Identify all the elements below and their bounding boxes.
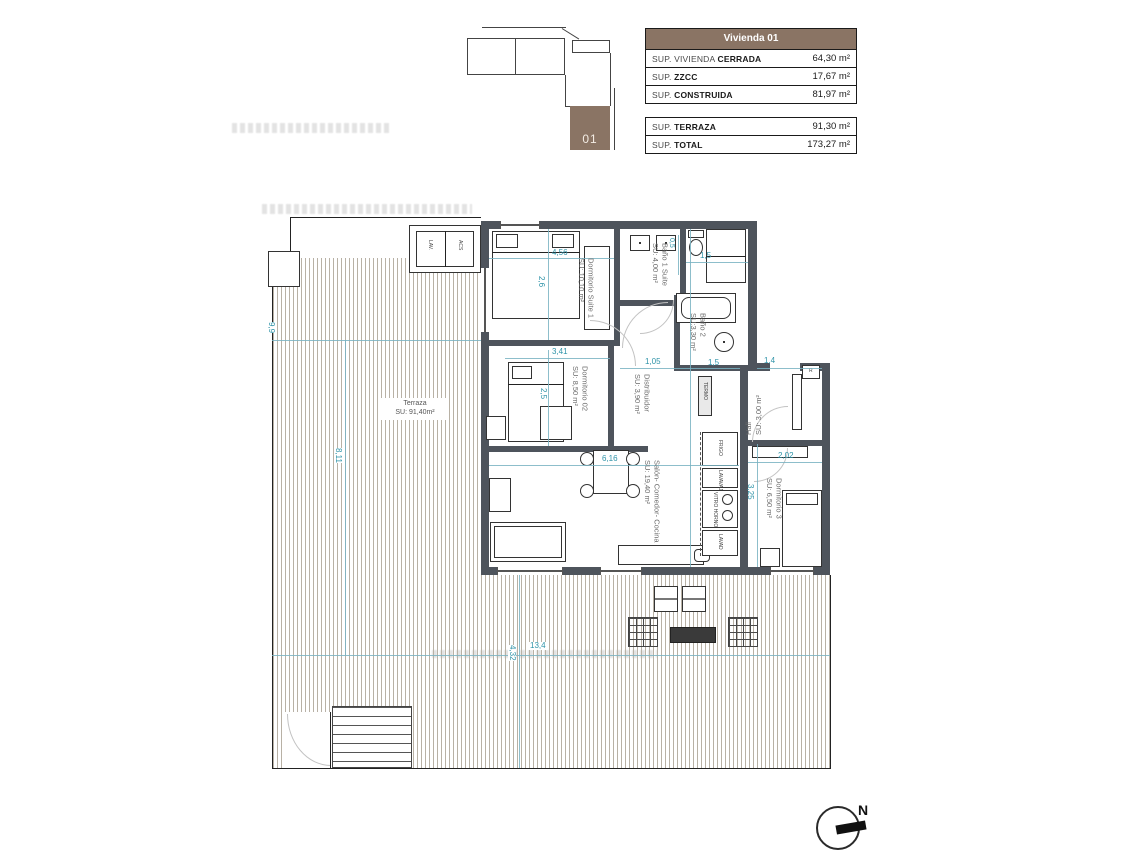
room-label-bano-1-suite: Baño 1 Suite SU: 4,00 m²: [650, 243, 670, 333]
dimension-line: [690, 229, 691, 567]
locator-highlighted-unit: 01: [570, 106, 610, 150]
room-area: SU: 4,00 m²: [650, 243, 660, 333]
terrace-deck-left: [273, 258, 481, 768]
wardrobe-shelf-line: [706, 256, 746, 257]
lav-closet-label: LAV.: [427, 240, 432, 250]
watermark-text: [262, 204, 472, 214]
dresser: [540, 406, 572, 440]
dimension-label: 9,9: [267, 322, 275, 333]
table-row: SUP. TOTAL 173,27 m²: [646, 135, 856, 153]
wall-ext-right: [822, 363, 830, 575]
bed-fold-line: [508, 384, 564, 385]
terrace-planter: [682, 586, 706, 612]
dimension-line: [757, 444, 758, 567]
dimension-label: 2,6: [537, 276, 545, 287]
window: [600, 567, 642, 575]
room-label-distribuidor: Distribuidor SU: 3,90 m²: [632, 374, 652, 458]
room-name: Terraza: [381, 400, 449, 409]
dishwasher-label: LAVAVAJ: [717, 470, 722, 490]
dimension-line: [686, 262, 748, 263]
dimension-line: [272, 655, 830, 656]
room-area: SU: 91,40m²: [381, 409, 449, 418]
window: [497, 567, 563, 575]
dimension-line: [757, 368, 822, 369]
acs-closet-label: ACS: [457, 240, 462, 250]
dimension-label: 13,4: [528, 642, 548, 650]
watermark-text: [232, 123, 390, 133]
room-name: Dormitorio 02: [580, 366, 590, 446]
terrace-table-grid: [628, 617, 658, 647]
burner: [722, 494, 733, 505]
room-name: Hall: [744, 383, 754, 435]
row-value: 91,30 m²: [813, 121, 851, 132]
room-name: Salón- Comedor- Cocina: [652, 460, 662, 572]
room-area: SU: 8,50 m²: [570, 366, 580, 446]
washbasin-drain: [723, 341, 725, 343]
wall-right-upper: [748, 221, 757, 371]
dimension-line: [272, 340, 481, 341]
dimension-line: [345, 340, 346, 655]
dimension-line: [678, 235, 679, 275]
fridge-label: FRIGO: [717, 440, 722, 456]
table-row: SUP. ZZCC 17,67 m²: [646, 67, 856, 85]
locator-connector-v2: [565, 75, 566, 106]
dimension-label: 3,41: [552, 348, 568, 356]
terrace-edge-right: [830, 575, 831, 768]
dimension-line: [548, 350, 549, 446]
dining-chair: [580, 484, 594, 498]
pillow: [512, 366, 532, 379]
compass-north-label: N: [858, 802, 868, 818]
dimension-label: 8,11: [334, 448, 342, 463]
pillow: [786, 493, 818, 505]
room-name: Dormitorio 3: [774, 478, 784, 558]
room-area: SU:3,30 m²: [688, 313, 698, 385]
dimension-label: 1,4: [764, 357, 775, 365]
locator-block-left: [467, 38, 565, 75]
surface-table-main: Vivienda 01 SUP. VIVIENDA CERRADA 64,30 …: [645, 28, 857, 104]
kitchen-counter-edge: [700, 432, 701, 556]
washer-label: LAVAD: [717, 534, 722, 550]
dimension-label: 1,05: [645, 358, 661, 366]
room-area: SU: 3,00 m²: [754, 383, 764, 435]
room-area: SU: 19,40 m²: [642, 460, 652, 572]
window: [770, 567, 814, 575]
locator-block-right: [572, 40, 610, 53]
room-area: SU: 10,10 m²: [576, 258, 586, 378]
terrace-edge-top: [290, 217, 481, 218]
hall-cabinet: [792, 374, 802, 430]
room-name: Distribuidor: [642, 374, 652, 458]
table-row: SUP. VIVIENDA CERRADA 64,30 m²: [646, 49, 856, 67]
floorplan-sheet: 01 Vivienda 01 SUP. VIVIENDA CERRADA 64,…: [0, 0, 1140, 860]
armchair: [489, 478, 511, 512]
pillow: [496, 234, 518, 248]
room-name: Baño 2: [698, 313, 708, 385]
dimension-label: 1,5: [700, 252, 711, 260]
row-label: SUP. CONSTRUIDA: [652, 90, 733, 100]
sofa-seat: [494, 526, 562, 558]
cooktop-label: VITRO HORNO: [705, 492, 717, 527]
terrace-pillar: [268, 251, 300, 287]
room-name: Baño 1 Suite: [660, 243, 670, 333]
room-label-dormitorio-3: Dormitorio 3 SU: 6,50 m²: [764, 478, 784, 558]
burner: [722, 510, 733, 521]
nightstand: [486, 416, 506, 440]
surface-table-header: Vivienda 01: [646, 29, 856, 49]
table-row: SUP. TERRAZA 91,30 m²: [646, 118, 856, 135]
dining-chair: [580, 452, 594, 466]
dimension-label: 1,5: [708, 359, 719, 367]
window: [481, 268, 489, 332]
room-label-salon-comedor-cocina: Salón- Comedor- Cocina SU: 19,40 m²: [642, 460, 662, 572]
dimension-label: 3,25: [746, 484, 754, 500]
terrace-stairs: [332, 706, 412, 768]
room-label-bano-2: Baño 2 SU:3,30 m²: [688, 313, 708, 385]
dimension-label: 2,02: [778, 452, 794, 460]
terrace-edge-bottom: [272, 768, 831, 769]
row-value: 173,27 m²: [807, 139, 850, 150]
row-label: SUP. ZZCC: [652, 72, 698, 82]
sink-drain: [639, 242, 641, 244]
room-area: SU: 6,50 m²: [764, 478, 774, 558]
dimension-line: [519, 575, 520, 768]
surface-table-totals: SUP. TERRAZA 91,30 m² SUP. TOTAL 173,27 …: [645, 117, 857, 154]
terrace-planter: [654, 586, 678, 612]
register-label: R: [809, 369, 813, 374]
pillow: [552, 234, 574, 248]
terrace-door-leaf: [330, 712, 331, 768]
room-label-terraza: Terraza SU: 91,40m²: [381, 398, 449, 420]
utility-closet-divider: [445, 231, 446, 267]
room-area: SU: 3,90 m²: [632, 374, 642, 458]
dimension-label: 4,32: [508, 645, 516, 661]
row-value: 64,30 m²: [813, 53, 851, 64]
dimension-label: 6,16: [602, 455, 618, 463]
locator-connector-v3: [614, 88, 615, 150]
row-label: SUP. VIVIENDA CERRADA: [652, 54, 761, 64]
terrace-table-grid: [728, 617, 758, 647]
dimension-line: [748, 462, 822, 463]
locator-divider: [515, 38, 516, 75]
table-row: SUP. CONSTRUIDA 81,97 m²: [646, 85, 856, 103]
row-label: SUP. TOTAL: [652, 140, 703, 150]
dining-chair: [626, 484, 640, 498]
room-label-dormitorio-suite-1: Dormitorio Suite 1 SU: 10,10 m²: [576, 258, 596, 378]
dimension-line: [489, 465, 739, 466]
dimension-line: [548, 229, 549, 340]
locator-roofline: [482, 27, 566, 28]
room-label-hall: Hall SU: 3,00 m²: [744, 383, 764, 435]
room-name: Dormitorio Suite 1: [586, 258, 596, 378]
room-label-dormitorio-02: Dormitorio 02 SU: 8,50 m²: [570, 366, 590, 446]
window: [500, 221, 540, 229]
dimension-label: 2,5: [539, 388, 547, 399]
terrace-bench: [670, 627, 716, 643]
locator-unit-label: 01: [582, 132, 597, 146]
locator-connector-v1: [610, 53, 611, 106]
row-label: SUP. TERRAZA: [652, 122, 716, 132]
row-value: 81,97 m²: [813, 89, 851, 100]
dimension-label: 4,56: [552, 249, 568, 257]
row-value: 17,67 m²: [813, 71, 851, 82]
dimension-line: [620, 368, 740, 369]
